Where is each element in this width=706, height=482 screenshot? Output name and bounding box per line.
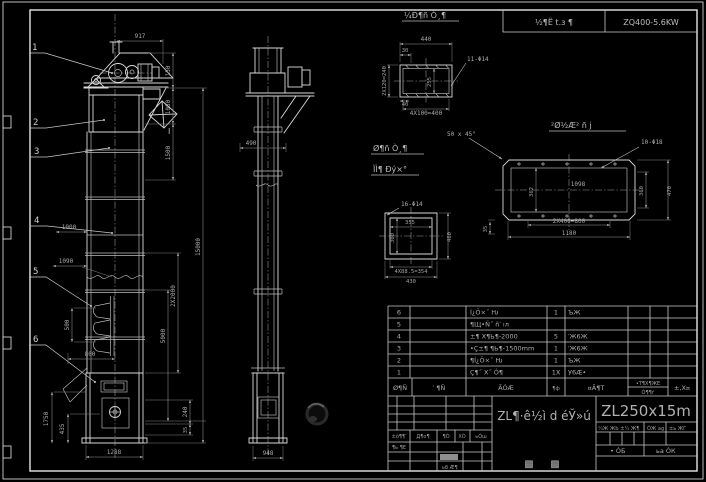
dim-1500: 1500 xyxy=(165,145,172,160)
balloon-2: 2 xyxy=(33,118,38,128)
rev-cell: ьÓш xyxy=(475,433,487,440)
balloon-1: 1 xyxy=(32,43,37,53)
holes-label-16: 16-Φ14 xyxy=(401,201,423,208)
dim-430: 430 xyxy=(406,279,416,285)
bom-mat: У6Æ• xyxy=(568,369,586,377)
drawing-frame xyxy=(3,2,703,479)
rev-cell: ХÓ xyxy=(458,433,465,440)
front-view-dimensions: 917 150 1080 1500 2X2000 5000 15000 240 … xyxy=(43,33,286,461)
dim-470: 470 xyxy=(667,186,673,196)
bom-no: 4 xyxy=(397,333,401,341)
rev-cell: ±ò¶¶′ xyxy=(392,433,408,440)
bom-no: 5 xyxy=(397,321,401,329)
bom-qty: 1 xyxy=(554,345,558,353)
dim-300: 300 xyxy=(390,233,396,243)
dim-150: 150 xyxy=(165,65,172,76)
detail-top-title: ¼Ð¶ñ Ò¸¶ xyxy=(404,9,446,20)
dim-440: 440 xyxy=(421,36,432,43)
dim-948: 948 xyxy=(263,450,274,457)
dim-490: 490 xyxy=(246,140,257,147)
detail-square-flange: Ø¶ñ Ò¸¶ ÏÌ¶ Ðý×° 16-Φ14 355 300 460 4X88… xyxy=(371,142,453,285)
right-sign-label: ÓЖ ag xyxy=(647,425,664,432)
section-mark-label: I xyxy=(168,127,170,136)
cad-drawing: ½¶Ё t.з ¶ ZQ400-5.6KW I xyxy=(0,0,706,482)
dim-1288: 1288 xyxy=(107,449,122,456)
bom-footer: Ø¶Ñ ′ ¶Ñ ÃÓÆ ¶ф ¤Ã¶Т •Т¶Х¶ЖЕ Ó¶¶ѓ ±‚Х¤ xyxy=(393,381,690,396)
detail-long-title: ²Ø½Æ² ñ ј xyxy=(551,120,592,130)
bom-row: 2 ¶Í¿Ö×˝ Ƕ 1 ЪЖ xyxy=(397,356,580,365)
bom-row: 5 ¶Щ•Ñ˝ ñ′ ıл xyxy=(397,320,509,329)
bom-row: 1 Ç¶˝ X˝ Ó¶ 1X У6Æ• xyxy=(397,368,586,377)
dim-1180: 1180 xyxy=(562,230,577,237)
bom-footer-code: ′ ¶Ñ xyxy=(433,383,446,392)
bom-qty: 1 xyxy=(554,309,558,317)
bom-desc: Ç¶˝ X˝ Ó¶ xyxy=(470,368,503,377)
bucket-chain xyxy=(93,296,114,356)
header-drive-spec: ZQ400-5.6KW xyxy=(623,18,679,27)
dim-2x120: 2X120=240 xyxy=(382,66,388,96)
title-block: ±ò¶¶′ Д¶о¶ ¶Ó ХÓ ьÓш ¶ь ¶Е ьб Æ¶ ZL¶·ê½ì… xyxy=(388,396,697,471)
dim-1750: 1750 xyxy=(43,411,50,426)
dim-30: 30 xyxy=(402,48,409,54)
approve-label: ьб Æ¶ xyxy=(442,465,458,471)
bom-footer-weight-bottom: Ó¶¶ѓ xyxy=(642,389,655,396)
chamfer-label: 50 x 45° xyxy=(447,131,476,138)
highlighted-cell xyxy=(440,454,458,460)
bom-mat: ЪЖ xyxy=(568,357,580,365)
dim-2x400: 2X400=800 xyxy=(553,218,586,225)
bom-no: 3 xyxy=(397,345,401,353)
dim-240: 240 xyxy=(182,406,189,417)
model-number: ZL250x15m xyxy=(601,402,691,420)
balloon-6: 6 xyxy=(33,335,38,345)
dim-1090: 1090 xyxy=(59,258,74,265)
detail-square-title2: ÏÌ¶ Ðý×° xyxy=(373,163,407,174)
dim-35b: 35 xyxy=(483,226,489,233)
balloon-4: 4 xyxy=(34,216,39,226)
cad-viewport: ½¶Ё t.з ¶ ZQ400-5.6KW I xyxy=(0,0,706,482)
rev-cell: ¶Ó xyxy=(442,433,449,440)
dim-4x100: 4X100=400 xyxy=(410,110,443,117)
dim-40: 40 xyxy=(402,102,409,108)
holes-label-11: 11-Φ14 xyxy=(467,56,489,63)
bom-desc: ±¶ X¶Ь¶-2000 xyxy=(470,333,518,341)
dim-1098: 1098 xyxy=(571,181,586,188)
right-header-tokens: ¼Ж ЖЬ ±¼ Ж¶ xyxy=(598,426,639,432)
right-date-label: ±ь ЖГ xyxy=(669,426,686,432)
bom-footer-note: ¤Ã¶Т xyxy=(588,383,605,392)
dim-500: 500 xyxy=(64,319,71,330)
rev-cell: Д¶о¶ xyxy=(416,434,429,440)
bom-footer-no: Ø¶Ñ xyxy=(393,383,407,392)
bom-desc: Í¿Ö×˝ Ƕ xyxy=(470,308,498,317)
dim-2x2000: 2X2000 xyxy=(170,285,177,307)
dim-35: 35 xyxy=(183,427,189,434)
dim-255: 255 xyxy=(427,77,433,87)
bom-qty: 5 xyxy=(554,333,558,341)
bom-table: 6 Í¿Ö×˝ Ƕ 1 ЪЖ 5 ¶Щ•Ñ˝ ñ′ ıл 4 ±¶ X¶Ь¶-2… xyxy=(388,306,697,471)
bom-qty: 1X xyxy=(552,369,561,377)
dim-360: 360 xyxy=(639,186,645,196)
zone-markers xyxy=(3,116,11,458)
bom-qty: 1 xyxy=(554,357,558,365)
bom-row: 6 Í¿Ö×˝ Ƕ 1 ЪЖ xyxy=(397,308,580,317)
header-bar: ½¶Ё t.з ¶ ZQ400-5.6KW xyxy=(503,10,697,32)
bom-mat: ′Ж6Ж xyxy=(568,345,588,353)
dim-435: 435 xyxy=(59,423,66,434)
bom-footer-name: ÃÓÆ xyxy=(498,383,514,392)
bom-mat: ЪЖ xyxy=(568,309,580,317)
sheet-box-2: ▩ xyxy=(550,459,559,470)
balloon-labels: 1 2 3 4 5 6 xyxy=(29,43,113,383)
detail-square-title1: Ø¶ñ Ò¸¶ xyxy=(373,142,407,153)
holes-label-10: 10-Φ18 xyxy=(641,139,663,146)
bom-row: 4 ±¶ X¶Ь¶-2000 5 ′Ж6Ж xyxy=(397,333,588,341)
sheet-box-1: ▩ xyxy=(524,459,533,470)
header-project-label: ½¶Ё t.з ¶ xyxy=(535,17,573,27)
bom-desc: ¶Í¿Ö×˝ Ƕ xyxy=(470,356,503,365)
stage-right-label: ьа ÓК xyxy=(656,446,676,455)
detail-top-flange: ¼Ð¶ñ Ò¸¶ 440 30 2X120=240 255 40 4X100=4… xyxy=(382,9,489,117)
design-label: ¶ь ¶Е xyxy=(392,445,406,451)
bom-footer-qty: ¶ф xyxy=(552,386,559,392)
dim-362: 362 xyxy=(529,187,535,197)
bom-mat: ′Ж6Ж xyxy=(568,333,588,341)
front-elevation-view: I xyxy=(63,14,177,458)
product-title: ZL¶·ê½ì d éЎ»ú xyxy=(497,408,591,423)
bom-desc: •Ç±¶ ¶Ь¶-1500mm xyxy=(470,345,534,353)
dim-800: 800 xyxy=(85,351,96,358)
bom-footer-scale: ±‚Х¤ xyxy=(674,384,690,392)
bom-row: 3 •Ç±¶ ¶Ь¶-1500mm 1 ′Ж6Ж xyxy=(397,345,588,353)
bom-desc: ¶Щ•Ñ˝ ñ′ ıл xyxy=(470,320,509,329)
dim-1080: 1080 xyxy=(165,99,172,114)
balloon-5: 5 xyxy=(33,267,38,277)
dim-5000: 5000 xyxy=(160,328,167,343)
stage-left-label: • ÓБ xyxy=(610,446,625,455)
dim-460: 460 xyxy=(447,232,453,242)
dim-355: 355 xyxy=(405,220,415,226)
bom-no: 2 xyxy=(397,357,401,365)
dim-917: 917 xyxy=(135,33,146,40)
smudge-blob xyxy=(307,404,327,424)
balloon-3: 3 xyxy=(34,147,39,157)
dim-4x885: 4X88.5=354 xyxy=(394,269,428,275)
bom-no: 1 xyxy=(397,369,401,377)
side-elevation-view: 490 948 xyxy=(240,36,314,458)
dim-15000: 15000 xyxy=(195,238,202,256)
bom-no: 6 xyxy=(397,309,401,317)
detail-long-flange: ²Ø½Æ² ñ ј 50 x 45° 10-Φ18 1098 362 360 4… xyxy=(447,120,673,240)
bom-footer-weight-top: •Т¶Х¶ЖЕ xyxy=(636,381,660,387)
